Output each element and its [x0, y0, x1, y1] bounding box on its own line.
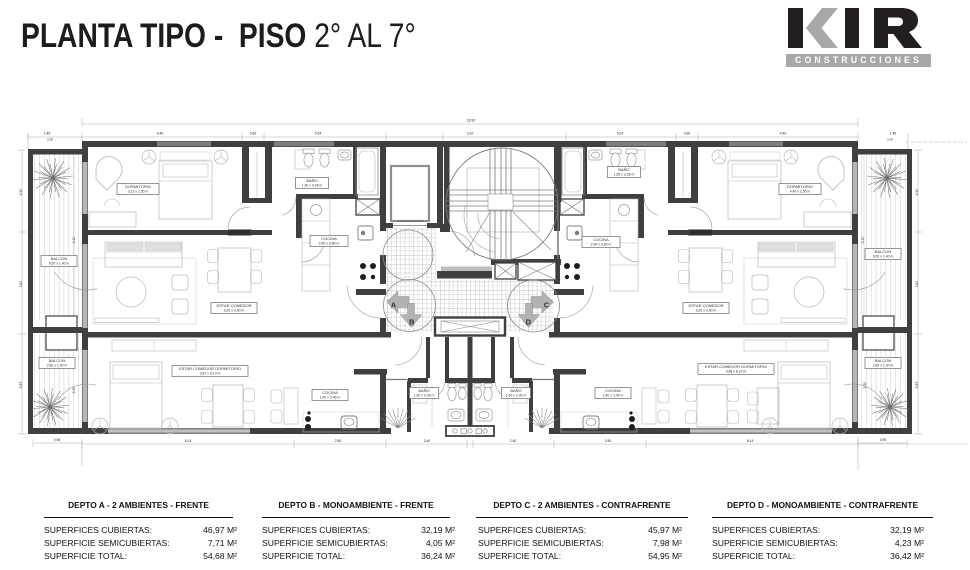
svg-text:6,20 x 3,60 m: 6,20 x 3,60 m	[696, 309, 717, 313]
svg-text:BALCON: BALCON	[49, 358, 66, 363]
svg-text:2.50: 2.50	[605, 439, 612, 443]
svg-text:ESTAR COMEDOR DORMITORIO: ESTAR COMEDOR DORMITORIO	[705, 364, 767, 369]
svg-text:1,50 x 3,28 m: 1,50 x 3,28 m	[614, 173, 635, 177]
svg-text:2.87: 2.87	[915, 382, 919, 389]
svg-text:4.40: 4.40	[780, 132, 787, 136]
svg-text:D: D	[526, 318, 532, 327]
svg-text:4.40: 4.40	[157, 132, 164, 136]
svg-text:1.45: 1.45	[890, 132, 897, 136]
svg-text:3,13 x 2,50 m: 3,13 x 2,50 m	[128, 190, 149, 194]
svg-text:3,48 x 8,10 m: 3,48 x 8,10 m	[726, 370, 747, 374]
svg-text:2,87 x 8,10 m: 2,87 x 8,10 m	[200, 372, 221, 376]
svg-text:23.92: 23.92	[467, 119, 476, 123]
svg-text:5.24: 5.24	[617, 132, 624, 136]
svg-text:1.45: 1.45	[44, 132, 51, 136]
svg-text:2.87: 2.87	[19, 382, 23, 389]
svg-text:COCINA: COCINA	[322, 390, 338, 395]
svg-text:9,50 x 1,40 m: 9,50 x 1,40 m	[873, 255, 894, 259]
svg-text:2.40: 2.40	[510, 439, 517, 443]
svg-text:BAÑO: BAÑO	[510, 388, 521, 393]
svg-text:2.50: 2.50	[335, 439, 342, 443]
svg-text:A: A	[391, 301, 397, 310]
svg-text:ESTAR COMEDOR: ESTAR COMEDOR	[216, 303, 251, 308]
svg-text:2.50: 2.50	[915, 189, 919, 196]
svg-text:COCINA: COCINA	[593, 237, 609, 242]
svg-text:BAÑO: BAÑO	[418, 388, 429, 393]
svg-text:1,50 x 3,28 m: 1,50 x 3,28 m	[302, 184, 323, 188]
svg-text:3.60: 3.60	[915, 281, 919, 288]
svg-text:BAÑO: BAÑO	[618, 167, 629, 172]
svg-text:3.60: 3.60	[19, 281, 23, 288]
svg-text:6,20 x 3,60 m: 6,20 x 3,60 m	[224, 309, 245, 313]
svg-text:BAÑO: BAÑO	[306, 178, 317, 183]
svg-text:DORMITORIO: DORMITORIO	[787, 184, 813, 189]
svg-text:2.40: 2.40	[424, 439, 431, 443]
svg-text:1,40 x 3,45 m: 1,40 x 3,45 m	[320, 396, 341, 400]
svg-text:0.60: 0.60	[250, 132, 257, 136]
svg-text:5.24: 5.24	[315, 132, 322, 136]
svg-text:ESTAR COMEDOR DORMITORIO: ESTAR COMEDOR DORMITORIO	[179, 366, 241, 371]
svg-text:2,90 x 3,80 m: 2,90 x 3,80 m	[319, 242, 340, 246]
svg-text:COCINA: COCINA	[605, 388, 621, 393]
svg-text:1,50 x 2,45 m: 1,50 x 2,45 m	[506, 394, 527, 398]
svg-text:0.60: 0.60	[684, 132, 691, 136]
svg-text:C: C	[544, 301, 550, 310]
svg-text:DORMITORIO: DORMITORIO	[125, 184, 151, 189]
svg-text:ESTAR COMEDOR: ESTAR COMEDOR	[688, 303, 723, 308]
svg-text:2,90 x 3,80 m: 2,90 x 3,80 m	[591, 243, 612, 247]
svg-text:BALCON: BALCON	[51, 256, 68, 261]
svg-text:BALCON: BALCON	[875, 358, 892, 363]
svg-text:COCINA: COCINA	[321, 236, 337, 241]
svg-text:0.90: 0.90	[887, 138, 893, 142]
svg-text:4,40 x 2,50 m: 4,40 x 2,50 m	[790, 190, 811, 194]
svg-text:BALCON: BALCON	[875, 249, 892, 254]
svg-text:2.50: 2.50	[19, 189, 23, 196]
svg-text:1,40 x 3,45 m: 1,40 x 3,45 m	[603, 394, 624, 398]
svg-text:0.90: 0.90	[880, 438, 887, 442]
svg-text:9,50 x 1,40 m: 9,50 x 1,40 m	[49, 262, 70, 266]
svg-text:2,80 x 1,40 m: 2,80 x 1,40 m	[47, 364, 68, 368]
svg-text:B: B	[409, 318, 415, 327]
svg-text:1,50 x 2,45 m: 1,50 x 2,45 m	[414, 394, 435, 398]
svg-text:8.14: 8.14	[747, 439, 754, 443]
svg-text:0.90: 0.90	[54, 438, 61, 442]
svg-text:2,80 x 1,40 m: 2,80 x 1,40 m	[873, 364, 894, 368]
svg-text:8.14: 8.14	[185, 439, 192, 443]
svg-text:0.90: 0.90	[47, 138, 53, 142]
svg-text:3.10: 3.10	[467, 132, 474, 136]
